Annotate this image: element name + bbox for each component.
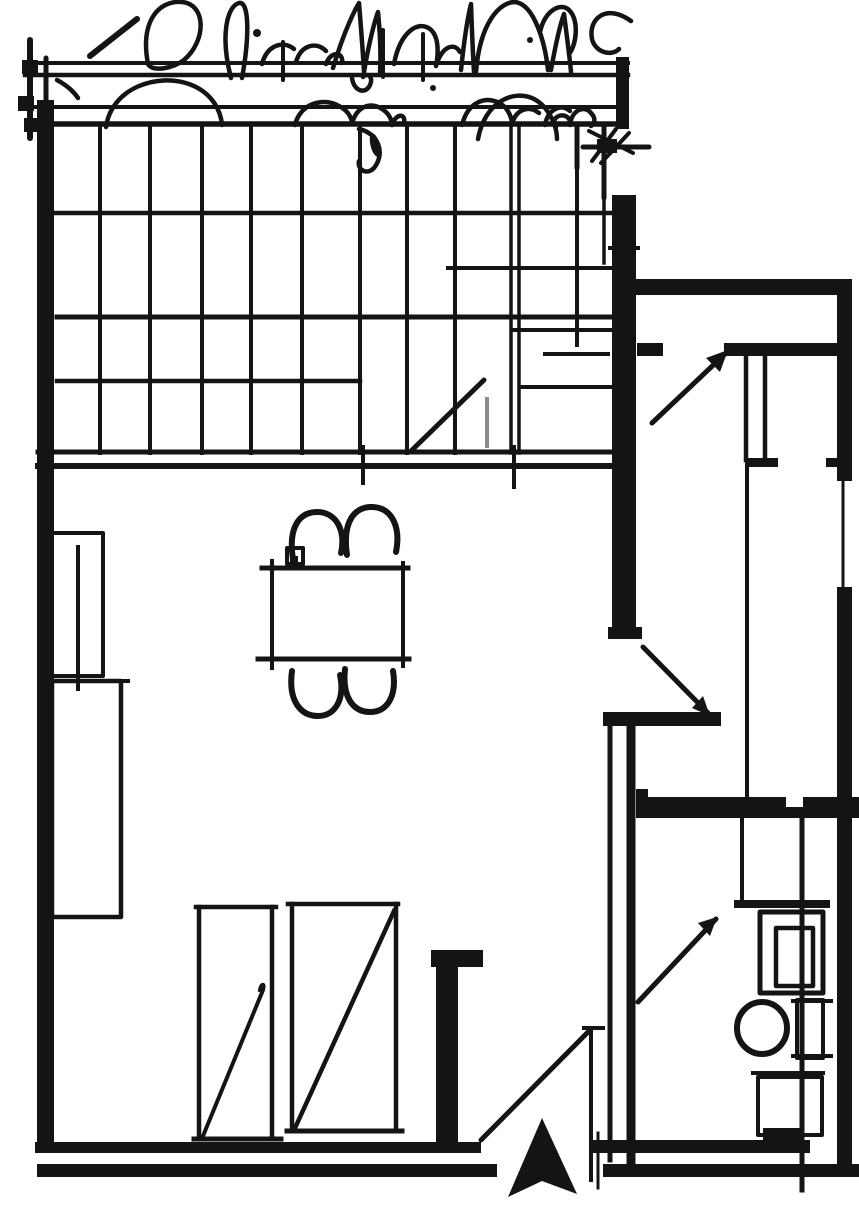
wall-divider-cap <box>608 627 642 639</box>
ink-dot <box>253 29 261 37</box>
column-pillar <box>436 952 458 1144</box>
column-cap <box>431 950 483 967</box>
ink-dot <box>430 85 436 91</box>
beam-end-post <box>616 57 629 129</box>
wall-south-inner-left <box>35 1142 481 1153</box>
ink-dot <box>527 37 533 43</box>
wall-east-lower <box>837 587 852 1177</box>
wall-main-divider <box>612 195 636 637</box>
wall-wing-north <box>618 279 852 295</box>
wall-corridor-south <box>603 712 721 726</box>
wall-east-upper <box>837 285 852 481</box>
closet-end-tick <box>745 458 778 467</box>
paper-background <box>0 0 859 1205</box>
vanity-counter-line <box>734 900 830 908</box>
floor-plan-sheet <box>0 0 859 1205</box>
wall-west <box>37 100 54 1153</box>
wall-shelf <box>724 343 845 356</box>
wall-south-outer-right <box>603 1164 859 1177</box>
wall-notch <box>786 797 803 807</box>
ink-smudge <box>763 1128 801 1140</box>
wall-south-outer-left <box>37 1164 497 1177</box>
wall-shelf-stub <box>637 343 663 356</box>
floor-plan-drawing <box>0 0 859 1205</box>
wall-south-inner-right <box>592 1140 810 1153</box>
east-wall-tick <box>826 458 848 467</box>
wall-bath-north <box>638 797 859 818</box>
